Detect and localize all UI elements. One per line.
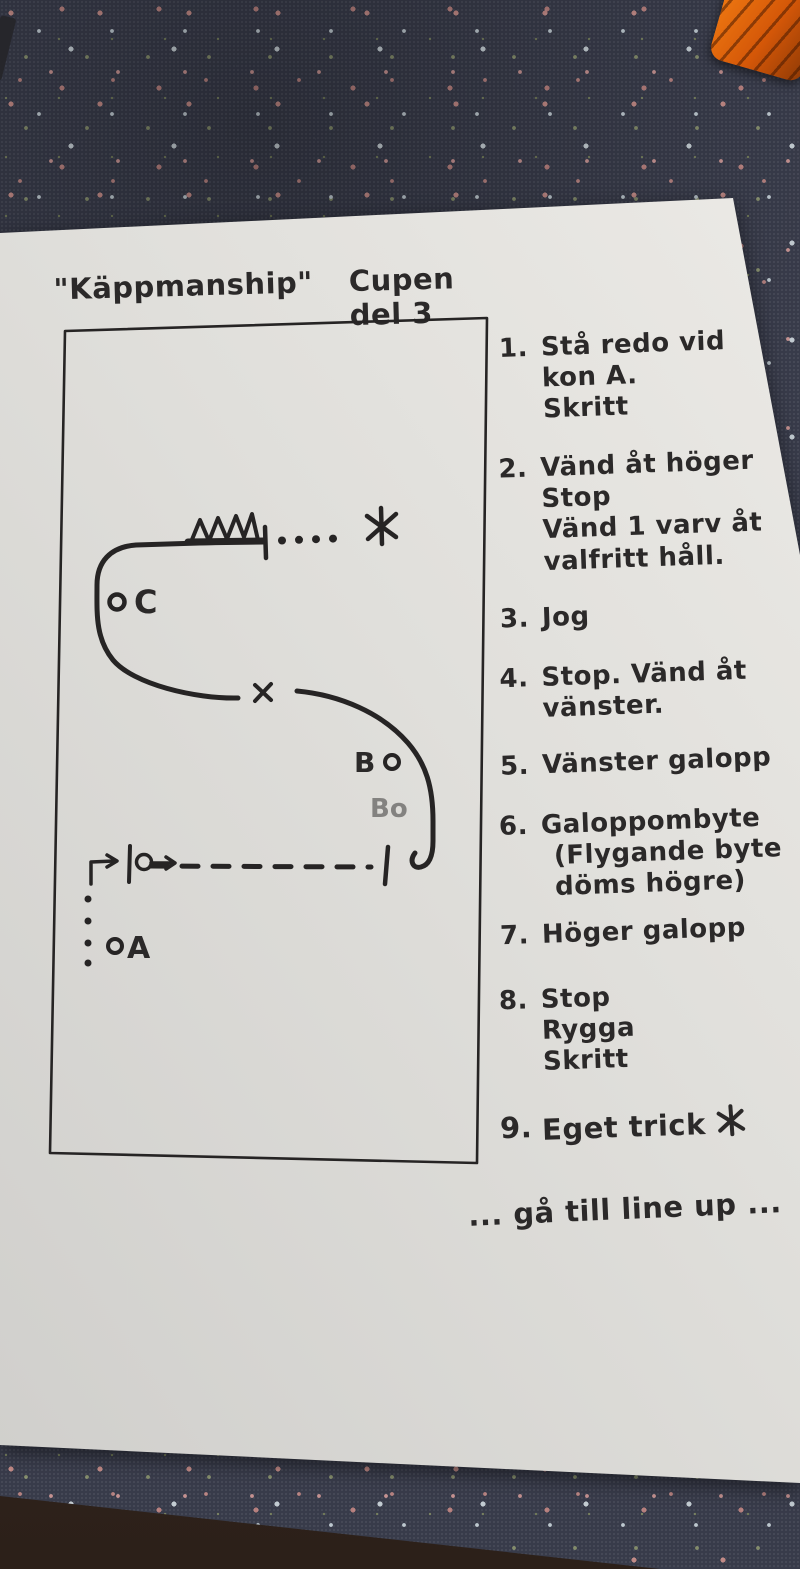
instruction-item-8: 8. Stop Rygga Skritt xyxy=(498,982,636,1080)
instruction-number: 3. xyxy=(499,603,542,636)
instruction-line: Skritt xyxy=(543,1044,637,1078)
jump-ground-line xyxy=(188,541,264,542)
instruction-number: 7. xyxy=(500,920,543,953)
erased-ghost-label: Bo xyxy=(370,794,408,824)
dashed-end-bar xyxy=(385,847,388,884)
instruction-number: 9. xyxy=(499,1110,542,1146)
marker-b-label: B xyxy=(354,746,375,779)
cone-b-circle xyxy=(385,755,399,769)
arena-border xyxy=(50,318,487,1163)
course-path-right-curve xyxy=(297,691,433,867)
instruction-number: 5. xyxy=(500,750,543,783)
star-icon xyxy=(715,1103,746,1138)
dotted-column xyxy=(85,896,92,967)
instruction-line: Jog xyxy=(541,601,590,634)
instruction-line: Stop xyxy=(540,982,634,1016)
jump-end-tick xyxy=(265,527,266,558)
instruction-number: 4. xyxy=(499,663,542,696)
instruction-number: 1. xyxy=(498,333,541,366)
arena-diagram: C B Bo A xyxy=(40,295,500,1175)
instruction-number: 8. xyxy=(498,985,541,1018)
instruction-number: 6. xyxy=(498,810,541,843)
instruction-item-6: 6. Galoppombyte (Flygande byte döms högr… xyxy=(498,802,783,905)
instruction-line: Rygga xyxy=(541,1013,635,1047)
instruction-item-3: 3. Jog xyxy=(499,601,590,635)
star-icon xyxy=(367,508,396,544)
cone-a-circle xyxy=(108,939,122,953)
instruction-item-1: 1. Stå redo vid kon A. Skritt xyxy=(498,326,727,427)
dotted-track xyxy=(278,535,337,545)
dashed-track xyxy=(151,866,371,867)
x-mark-icon xyxy=(255,684,271,701)
marker-a-label: A xyxy=(127,931,151,966)
instruction-item-2: 2. Vänd åt höger Stop Vänd 1 varv åt val… xyxy=(498,445,764,579)
instruction-line: Eget trick xyxy=(541,1103,746,1148)
instruction-item-4: 4. Stop. Vänd åt vänster. xyxy=(499,656,748,727)
photo-of-handwritten-course-sheet: "Käppmanship" Cupen del 3 xyxy=(0,0,800,1569)
start-bar xyxy=(129,846,130,882)
marker-c-label: C xyxy=(134,583,157,621)
course-path-c-curve xyxy=(97,541,264,698)
instruction-line: Skritt xyxy=(543,388,728,426)
cone-c-circle xyxy=(110,595,125,610)
start-corner-arrow-icon xyxy=(91,855,117,884)
instruction-number: 2. xyxy=(498,453,541,486)
